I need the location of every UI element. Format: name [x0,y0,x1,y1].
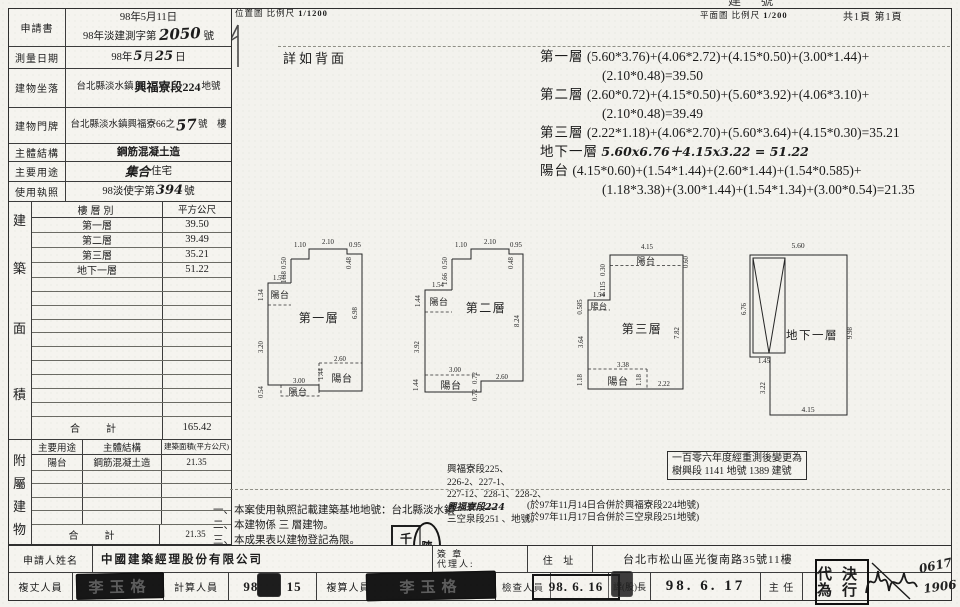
door-plate-label: 建物門牌 [9,108,66,143]
dim-label: 1.18 [636,373,643,385]
annex-structure: 鋼筋混凝土造 [83,455,162,470]
date-2-stampbox: 98. 6. 16 [532,574,620,600]
dim-label: 0.50 [281,256,288,268]
calc-expression: (5.60*3.76)+(4.06*2.72)+(4.15*0.50)+(3.0… [587,49,869,64]
dim-label: 1.45 [758,358,770,365]
stamp-name: 李玉格 [88,575,151,597]
license-value: 98淡使字第 394 號 [66,182,231,201]
dim-label: 1.54 [593,292,605,299]
structure-label: 主體結構 [9,144,66,161]
usage-handwritten: 集合 [125,164,150,180]
parcel-line: 興福寮段225、 [447,464,547,477]
survey-day-handwritten: 25 [155,49,173,65]
annex-header: 主要用途 主體結構 建築面積(平方公尺) [32,440,231,455]
survey-year: 98年 [111,51,132,64]
license-row: 使用執照 98淡使字第 394 號 [9,182,231,202]
calc-line: 地下一層 5.60x6.76＋4.15x3.22 = 51.22 [540,142,952,161]
balcony-label: 陽台 [270,289,289,300]
application-no-handwritten: 2050 [159,23,202,44]
date-3: 98. 6. 17 [651,573,761,600]
rechecker-name-stamp: 李玉格 [366,571,497,602]
plan-map-label: 平面圖 [700,10,729,20]
calc-expression: (2.60*0.72)+(4.15*0.50)+(5.60*3.92)+(4.0… [587,87,869,102]
dim-label: 0.95 [510,242,522,249]
balcony-label: 陽台 [591,301,608,311]
survey-date-label: 測量日期 [9,47,66,68]
dim-label: 1.44 [413,378,420,390]
area-row: 第一層 39.50 [32,218,231,233]
annex-row: 陽台 鋼筋混凝土造 21.35 [32,455,231,471]
survey-date-value: 98年 5 月 25 日 [66,47,231,68]
location-value: 台北縣淡水鎮 興福寮段224 地號 [66,69,231,108]
dim-label: 7.82 [674,326,681,338]
application-value: 98年5月11日 98年淡建測字第 2050 號 [66,9,231,46]
dim-label: 2.10 [322,239,334,246]
structure-value: 鋼筋混凝土造 [66,144,231,161]
area-row-empty [32,389,231,403]
cutoff-title-text: 建 號 [728,0,848,6]
dim-label: 5.60 [791,241,804,250]
balcony-label: 陽台 [441,379,462,392]
dim-label: 0.95 [349,242,361,249]
calc-line: 陽台 (4.15*0.60)+(1.54*1.44)+(2.60*1.44)+(… [540,161,952,180]
area-row-empty [32,278,231,292]
license-suffix: 號 [184,185,195,198]
area-total-row: 合 計 165.42 [32,417,231,439]
resurvey-staff-label: 複丈人員 [9,573,73,600]
calc-line: 第三層 (2.22*1.18)+(4.06*2.70)+(5.60*3.64)+… [540,123,952,142]
proxy-approval-stamp: 代為 決行 [815,559,869,605]
door-suffix: 號 樓 [198,120,227,132]
floor-sqm: 39.49 [163,233,231,247]
note-1: 一、本案使用執照記載建築基地地號：台北縣淡水鎮 [213,502,455,517]
dim-label: 0.585 [577,299,584,315]
director-label: 主 任 [761,573,803,600]
floor-title: 地下一層 [786,329,838,342]
floor-sqm: 51.22 [163,263,231,277]
floor-sqm: 35.21 [163,248,231,262]
annex-usage: 陽台 [32,455,83,470]
annex-row-empty [32,498,231,512]
structure-row: 主體結構 鋼筋混凝土造 [9,144,231,162]
floor-name: 第二層 [32,233,163,247]
applicant-label: 申請人姓名 [9,546,93,572]
survey-date-row: 測量日期 98年 5 月 25 日 [9,47,231,69]
area-row: 第三層 35.21 [32,248,231,263]
annex-area: 21.35 [162,455,231,470]
area-total-label: 合 計 [32,417,163,439]
side-char: 物 [13,519,26,538]
date-1-part: 15 [287,579,302,595]
merge-note-1: (於97年11月14日合併於興福寮段224地號) [527,500,699,512]
date-2-value: 98. 6. 16 [549,579,604,595]
application-no-suffix: 號 [204,31,215,42]
balcony-label: 陽台 [332,372,353,385]
side-char: 建 [13,210,26,229]
resurvey-note-box: 一百零六年度經重測後變更為 樹興段 1141 地號 1389 建號 [667,451,807,480]
director-signature-scribble: 0617 1906 [862,553,957,605]
dim-label: 2.60 [334,356,346,363]
area-total-value: 165.42 [163,417,231,439]
signature-digits: 1906 [922,577,957,596]
license-number-handwritten: 394 [156,183,183,199]
application-no-prefix: 98年淡建測字第 [83,31,157,42]
proxy-char: 代為 [817,566,842,598]
usage-printed: 住宅 [151,165,172,178]
agent-label: 代理人: [437,559,475,569]
building-area-side-label: 建 築 面 積 [9,202,32,439]
calc-line: (2.10*0.48)=39.49 [540,104,952,123]
survey-day-suffix: 日 [175,51,186,64]
applicant-row: 申請人姓名 中國建築經理股份有限公司 簽 章 代理人: 住 址 台北市松山區光復… [9,546,951,573]
location-city: 台北縣淡水鎮 [76,82,133,94]
license-label: 使用執照 [9,182,66,201]
calc-staff-label: 計算人員 [164,573,229,600]
dim-label: 3.38 [617,362,629,369]
resurvey-line: 樹興段 1141 地號 1389 建號 [672,466,802,479]
annex-total-label: 合 計 [32,525,160,544]
date-2-seal [612,572,632,596]
calc-floor-label: 地下一層 [540,144,598,159]
location-section: 興福寮段224 [134,80,200,95]
floor-name: 第一層 [32,218,163,232]
dim-label: 0.48 [346,256,353,268]
dim-label: 6.98 [352,306,359,318]
annex-row-empty [32,471,231,485]
calc-floor-label: 第三層 [540,125,584,140]
cutoff-title: 建 號 [728,0,848,6]
dim-label: 1.34 [258,288,265,300]
resurveyor-name-stamp: 李玉格 [76,572,165,600]
annex-row-empty [32,484,231,498]
dim-label: 2.22 [658,381,670,388]
dim-label: 3.00 [449,367,461,374]
floor-name: 地下一層 [32,263,163,277]
area-row-empty [32,320,231,334]
balcony-label: 陽台 [608,375,629,388]
dim-label: 1.18 [577,373,584,385]
calc-line: 第一層 (5.60*3.76)+(4.06*2.72)+(4.15*0.50)+… [540,47,952,66]
note-2: 二、本建物係 三 層建物。 [213,517,334,532]
signature-cell: 簽 章 代理人: [433,546,528,572]
dim-label: 2.10 [484,239,496,246]
side-char: 築 [13,258,26,277]
dim-label: 0.30 [600,263,607,275]
dim-label: 3.00 [293,378,305,385]
side-char: 屬 [13,473,26,492]
col-floor: 樓層別 [32,202,163,217]
signature-digits: 0617 [918,555,954,576]
dim-label: 1.54 [432,282,444,289]
side-char: 面 [13,318,26,337]
dim-label: 3.92 [414,340,421,352]
location-scale-label: 比例尺 [267,8,296,18]
floor-name: 第三層 [32,248,163,262]
see-back-note: 詳如背面 [283,48,347,67]
page-count: 共1頁 第1頁 [843,8,903,23]
annex-col-area: 建築面積(平方公尺) [162,440,231,454]
dim-label: 3.64 [578,335,585,347]
area-row-empty [32,375,231,389]
area-row: 地下一層 51.22 [32,263,231,278]
balcony-label: 陽台 [636,255,655,266]
side-char: 建 [13,496,26,515]
dim-label: 6.76 [741,302,748,314]
area-table-header: 樓層別 平方公尺 [32,202,231,218]
survey-month-suffix: 月 [143,51,154,64]
calc-line: (2.10*0.48)=39.50 [540,66,952,85]
area-row-empty [32,361,231,375]
resurvey-line: 一百零六年度經重測後變更為 [672,453,802,466]
location-label: 建物坐落 [9,69,66,108]
dim-label: 4.15 [641,244,653,251]
mid-dashed-line [230,489,950,490]
annex-side-label: 附 屬 建 物 [9,440,32,544]
dim-label: 3.20 [258,340,265,352]
dim-label: 0.72 [472,388,479,400]
parcel-line-crossed: 興福寮段224 [447,502,505,515]
door-plate-row: 建物門牌 台北縣淡水鎮興福寮66之 57 號 樓 [9,108,231,144]
building-survey-sheet: 建 號 位置圖 比例尺 1/1200 詳如背面 平面圖 比例尺 1/200 共1… [0,0,960,607]
location-suffix: 地號 [202,82,221,94]
dim-label: 1.10 [294,242,306,249]
area-row-empty [32,403,231,417]
floor-sqm: 39.50 [163,218,231,232]
dim-label: 3.22 [760,381,767,393]
annex-col-usage: 主要用途 [32,440,83,454]
balcony-label: 陽台 [429,296,448,307]
license-prefix: 98淡使字第 [102,185,155,198]
location-row: 建物坐落 台北縣淡水鎮 興福寮段224 地號 [9,69,231,109]
dim-label: 2.60 [496,374,508,381]
application-row: 申請書 98年5月11日 98年淡建測字第 2050 號 [9,9,231,47]
calc-expression: (2.22*1.18)+(4.06*2.70)+(5.60*3.64)+(4.1… [587,125,900,140]
annex-col-structure: 主體結構 [83,440,162,454]
annex-row-empty [32,511,231,525]
applicant-name: 中國建築經理股份有限公司 [93,546,433,572]
side-char: 積 [13,384,26,403]
area-row-empty [32,292,231,306]
stamp-name: 李玉格 [399,575,462,597]
balcony-label: 陽台 [288,386,307,397]
floor-plan-third: 4.15 陽台 0.60 0.30 2.115 1.54 陽台 0.585 第三… [568,237,718,409]
plan-scale-value: 1/200 [763,10,787,20]
calc-expression: (4.15*0.60)+(1.54*1.44)+(2.60*1.44)+(1.5… [572,163,861,178]
floor-title: 第二層 [466,301,507,315]
annex-total-row: 合 計 21.35 [32,525,231,544]
side-char: 附 [13,450,26,469]
door-number-handwritten: 57 [176,116,198,136]
floor-title: 第三層 [622,322,663,336]
application-label: 申請書 [9,9,66,46]
usage-value: 集合 住宅 [66,162,231,181]
calc-line: 第二層 (2.60*0.72)+(4.15*0.50)+(5.60*3.92)+… [540,85,952,104]
building-area-section: 建 築 面 積 樓層別 平方公尺 第一層 39.50 第二層 39.49 [9,202,231,440]
calc-line: (1.18*3.38)+(3.00*1.44)+(1.54*1.34)+(3.0… [540,180,952,199]
dim-label: 1.44 [318,367,325,379]
dim-label: 0.54 [258,385,265,397]
plan-scale-head: 平面圖 比例尺 1/200 [700,9,788,21]
dim-label: 8.24 [514,314,521,326]
dim-label: 0.60 [683,255,690,267]
door-plate-value: 台北縣淡水鎮興福寮66之 57 號 樓 [66,108,231,143]
floor-plan-second: 1.10 2.10 0.48 0.95 0.50 1.66 1.54 1.44 … [405,235,547,409]
location-scale-value: 1/1200 [298,8,328,18]
area-row-empty [32,347,231,361]
application-date: 98年5月11日 [120,11,177,24]
calc-floor-label: 第一層 [540,49,584,64]
calc-floor-label: 第二層 [540,87,584,102]
address-label: 住 址 [528,546,593,572]
calc-expression-handwritten: 5.60x6.76＋4.15x3.22 = 51.22 [601,144,809,159]
annex-table: 主要用途 主體結構 建築面積(平方公尺) 陽台 鋼筋混凝土造 21.35 合 計… [32,440,231,544]
annex-section: 附 屬 建 物 主要用途 主體結構 建築面積(平方公尺) 陽台 鋼筋混凝土造 2… [9,440,231,544]
survey-month-handwritten: 5 [133,49,142,65]
area-row: 第二層 39.49 [32,233,231,248]
dim-label: 1.10 [455,242,467,249]
floor-plan-first: 1.10 2.10 0.48 0.95 0.50 1.38 1.54 1.34 … [243,235,395,409]
dim-label: 1.44 [415,294,422,306]
location-map-scale: 位置圖 比例尺 1/1200 [235,7,328,19]
area-row-empty [32,306,231,320]
dim-label: 9.98 [847,326,854,338]
dim-label: 0.50 [442,256,449,268]
dim-label: 1.54 [273,275,285,282]
plan-scale-label: 比例尺 [732,10,761,20]
area-calculations: 第一層 (5.60*3.76)+(4.06*2.72)+(4.15*0.50)+… [540,47,952,199]
col-sqm: 平方公尺 [163,202,231,217]
date-1-seal [258,574,280,596]
usage-row: 主要用途 集合 住宅 [9,162,231,182]
floor-plan-basement: 5.60 6.76 9.98 地下一層 1.45 3.22 4.15 [740,235,902,430]
sign-label: 簽 章 [437,549,463,559]
dim-label: 0.72 [472,371,479,383]
dim-label: 4.15 [801,405,814,414]
merge-note-2: (於97年11月17日合併於三空泉段251地號) [527,512,699,524]
parcel-line: 226-2、227-1、 [447,477,547,490]
usage-label: 主要用途 [9,162,66,181]
dim-label: 0.48 [508,256,515,268]
location-map-label: 位置圖 [235,8,264,18]
left-form: 申請書 98年5月11日 98年淡建測字第 2050 號 測量日期 98年 5 … [8,8,232,545]
application-number-line: 98年淡建測字第 2050 號 [83,25,214,44]
area-row-empty [32,333,231,347]
floor-title: 第一層 [299,311,340,325]
area-table: 樓層別 平方公尺 第一層 39.50 第二層 39.49 第三層 35.21 地… [32,202,231,439]
calc-floor-label: 陽台 [540,163,569,178]
door-prefix: 台北縣淡水鎮興福寮66之 [71,120,176,132]
